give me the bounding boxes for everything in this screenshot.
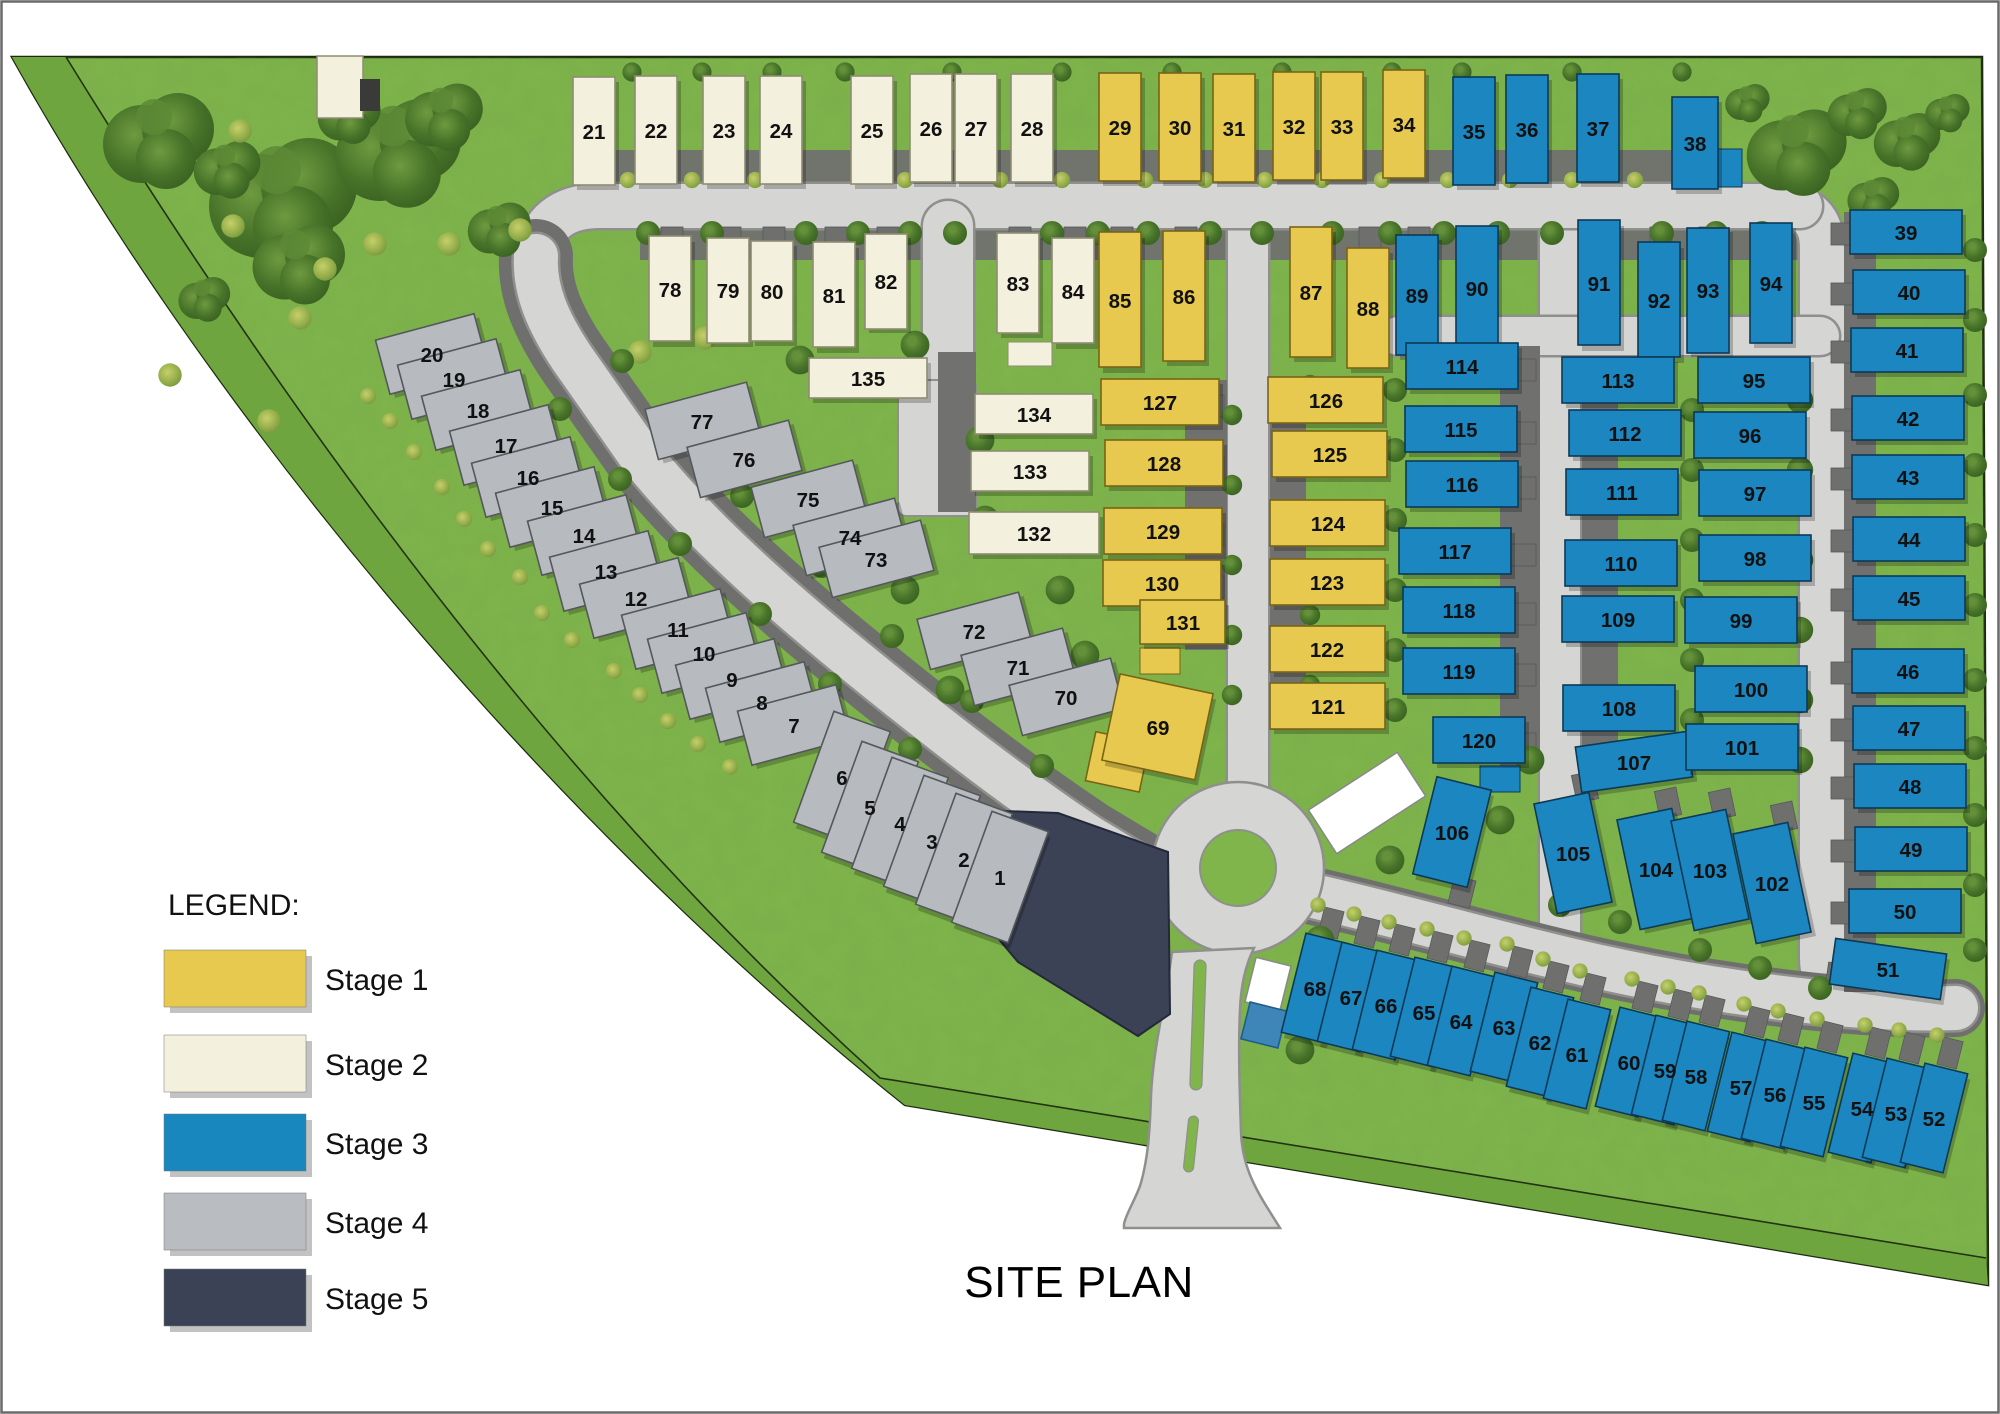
- svg-text:LEGEND:: LEGEND:: [168, 889, 300, 922]
- svg-text:79: 79: [717, 280, 740, 303]
- svg-text:53: 53: [1885, 1103, 1908, 1126]
- svg-text:86: 86: [1173, 286, 1196, 309]
- svg-text:95: 95: [1743, 370, 1766, 393]
- svg-text:99: 99: [1730, 610, 1753, 633]
- svg-text:30: 30: [1169, 117, 1192, 140]
- svg-text:131: 131: [1166, 612, 1200, 635]
- svg-text:100: 100: [1734, 679, 1768, 702]
- svg-text:73: 73: [865, 549, 888, 572]
- svg-text:45: 45: [1898, 588, 1921, 611]
- svg-text:52: 52: [1923, 1108, 1946, 1131]
- svg-text:26: 26: [920, 118, 943, 141]
- svg-text:27: 27: [965, 118, 988, 141]
- svg-text:119: 119: [1442, 661, 1475, 684]
- svg-text:113: 113: [1601, 370, 1634, 393]
- svg-text:31: 31: [1223, 118, 1246, 141]
- svg-text:6: 6: [836, 767, 847, 790]
- svg-text:71: 71: [1007, 657, 1030, 680]
- svg-text:88: 88: [1357, 298, 1380, 321]
- svg-text:114: 114: [1445, 356, 1479, 379]
- svg-text:77: 77: [691, 411, 714, 434]
- svg-text:83: 83: [1007, 273, 1030, 296]
- svg-text:93: 93: [1697, 280, 1720, 303]
- svg-text:107: 107: [1617, 752, 1651, 775]
- svg-text:65: 65: [1413, 1002, 1436, 1025]
- svg-text:63: 63: [1493, 1017, 1516, 1040]
- svg-text:135: 135: [851, 368, 885, 391]
- svg-text:122: 122: [1310, 639, 1344, 662]
- svg-text:127: 127: [1143, 392, 1177, 415]
- svg-text:133: 133: [1013, 461, 1047, 484]
- svg-text:118: 118: [1442, 600, 1475, 623]
- svg-text:9: 9: [726, 669, 737, 692]
- svg-text:129: 129: [1146, 521, 1180, 544]
- svg-text:94: 94: [1760, 273, 1783, 296]
- svg-text:40: 40: [1898, 282, 1921, 305]
- svg-text:124: 124: [1311, 513, 1346, 536]
- svg-text:10: 10: [693, 643, 716, 666]
- svg-text:120: 120: [1462, 730, 1496, 753]
- svg-text:50: 50: [1894, 901, 1917, 924]
- svg-text:125: 125: [1313, 444, 1347, 467]
- svg-text:56: 56: [1764, 1084, 1787, 1107]
- svg-text:130: 130: [1145, 573, 1179, 596]
- svg-text:67: 67: [1340, 987, 1363, 1010]
- svg-text:17: 17: [495, 435, 518, 458]
- svg-text:90: 90: [1466, 278, 1489, 301]
- svg-text:14: 14: [573, 525, 596, 548]
- svg-text:85: 85: [1109, 290, 1132, 313]
- svg-text:72: 72: [963, 621, 986, 644]
- svg-text:134: 134: [1017, 404, 1052, 427]
- svg-text:36: 36: [1516, 119, 1539, 142]
- svg-text:55: 55: [1803, 1092, 1826, 1115]
- svg-text:49: 49: [1900, 839, 1923, 862]
- svg-text:46: 46: [1897, 661, 1920, 684]
- svg-text:126: 126: [1309, 390, 1343, 413]
- svg-text:76: 76: [733, 449, 756, 472]
- svg-text:108: 108: [1602, 698, 1636, 721]
- svg-text:39: 39: [1895, 222, 1918, 245]
- svg-text:75: 75: [797, 489, 820, 512]
- svg-text:59: 59: [1654, 1060, 1677, 1083]
- svg-text:97: 97: [1744, 483, 1767, 506]
- svg-text:102: 102: [1755, 873, 1789, 896]
- svg-text:128: 128: [1147, 453, 1181, 476]
- svg-text:1: 1: [994, 867, 1005, 890]
- svg-text:60: 60: [1618, 1052, 1641, 1075]
- svg-text:101: 101: [1725, 737, 1759, 760]
- svg-text:28: 28: [1021, 118, 1044, 141]
- svg-text:Stage 3: Stage 3: [325, 1128, 428, 1161]
- svg-text:111: 111: [1606, 482, 1638, 505]
- svg-text:84: 84: [1062, 281, 1085, 304]
- svg-text:78: 78: [659, 279, 682, 302]
- svg-text:116: 116: [1445, 474, 1478, 497]
- svg-text:Stage 2: Stage 2: [325, 1049, 428, 1082]
- svg-text:8: 8: [756, 692, 767, 715]
- svg-text:62: 62: [1529, 1032, 1552, 1055]
- svg-text:58: 58: [1685, 1066, 1708, 1089]
- svg-text:16: 16: [517, 467, 540, 490]
- svg-text:29: 29: [1109, 117, 1132, 140]
- svg-text:34: 34: [1393, 114, 1416, 137]
- svg-text:35: 35: [1463, 121, 1486, 144]
- svg-text:110: 110: [1604, 553, 1637, 576]
- svg-text:92: 92: [1648, 290, 1671, 313]
- svg-text:109: 109: [1601, 609, 1635, 632]
- svg-text:104: 104: [1639, 859, 1674, 882]
- svg-text:11: 11: [667, 619, 689, 642]
- svg-text:24: 24: [770, 120, 793, 143]
- svg-text:48: 48: [1899, 776, 1922, 799]
- svg-text:3: 3: [926, 831, 937, 854]
- svg-text:103: 103: [1693, 860, 1727, 883]
- svg-text:89: 89: [1406, 285, 1429, 308]
- svg-text:106: 106: [1435, 822, 1469, 845]
- svg-text:SITE PLAN: SITE PLAN: [964, 1258, 1193, 1307]
- svg-text:80: 80: [761, 281, 784, 304]
- svg-text:32: 32: [1283, 116, 1306, 139]
- svg-text:25: 25: [861, 120, 884, 143]
- svg-text:69: 69: [1147, 717, 1170, 740]
- svg-text:61: 61: [1566, 1044, 1589, 1067]
- svg-text:44: 44: [1898, 529, 1921, 552]
- svg-text:47: 47: [1898, 718, 1921, 741]
- svg-text:Stage 4: Stage 4: [325, 1207, 428, 1240]
- svg-text:41: 41: [1896, 340, 1919, 363]
- svg-text:7: 7: [788, 715, 799, 738]
- svg-text:66: 66: [1375, 995, 1398, 1018]
- svg-text:2: 2: [958, 849, 969, 872]
- svg-text:81: 81: [823, 285, 846, 308]
- svg-text:Stage 1: Stage 1: [325, 964, 428, 997]
- svg-text:132: 132: [1017, 523, 1051, 546]
- svg-text:96: 96: [1739, 425, 1762, 448]
- svg-text:117: 117: [1438, 541, 1471, 564]
- svg-text:105: 105: [1556, 843, 1590, 866]
- svg-text:Stage 5: Stage 5: [325, 1283, 428, 1316]
- svg-text:121: 121: [1311, 696, 1345, 719]
- svg-text:37: 37: [1587, 118, 1610, 141]
- svg-text:87: 87: [1300, 282, 1323, 305]
- svg-text:19: 19: [443, 369, 466, 392]
- svg-text:91: 91: [1588, 273, 1611, 296]
- svg-text:98: 98: [1744, 548, 1767, 571]
- svg-text:51: 51: [1877, 959, 1900, 982]
- svg-text:64: 64: [1450, 1011, 1473, 1034]
- svg-text:12: 12: [625, 588, 648, 611]
- svg-text:23: 23: [713, 120, 736, 143]
- svg-text:123: 123: [1310, 572, 1344, 595]
- svg-text:20: 20: [421, 344, 444, 367]
- svg-text:21: 21: [583, 121, 606, 144]
- svg-text:68: 68: [1304, 978, 1327, 1001]
- svg-text:43: 43: [1897, 467, 1920, 490]
- svg-text:33: 33: [1331, 116, 1354, 139]
- svg-text:22: 22: [645, 120, 668, 143]
- svg-text:13: 13: [595, 561, 618, 584]
- svg-text:70: 70: [1055, 687, 1078, 710]
- svg-text:42: 42: [1897, 408, 1920, 431]
- svg-text:115: 115: [1444, 419, 1477, 442]
- svg-text:38: 38: [1684, 133, 1707, 156]
- svg-text:18: 18: [467, 400, 490, 423]
- svg-text:4: 4: [894, 813, 906, 836]
- svg-text:57: 57: [1730, 1077, 1753, 1100]
- svg-text:54: 54: [1851, 1098, 1874, 1121]
- svg-text:15: 15: [541, 497, 564, 520]
- svg-text:112: 112: [1608, 423, 1641, 446]
- svg-text:74: 74: [839, 527, 862, 550]
- svg-text:5: 5: [864, 797, 875, 820]
- svg-text:82: 82: [875, 271, 898, 294]
